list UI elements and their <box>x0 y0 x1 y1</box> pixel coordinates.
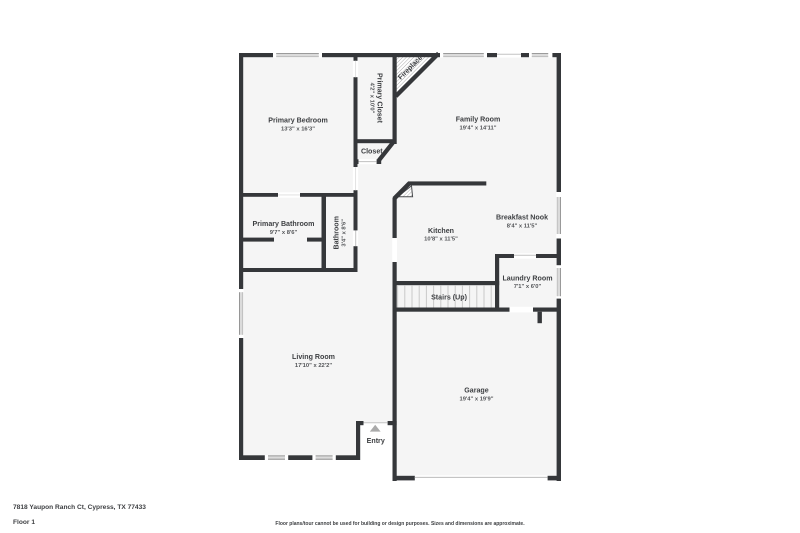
svg-text:Entry: Entry <box>367 437 385 445</box>
svg-text:Floor 1: Floor 1 <box>13 519 35 526</box>
svg-text:Breakfast Nook: Breakfast Nook <box>496 214 548 222</box>
svg-text:Living Room: Living Room <box>292 353 335 361</box>
svg-text:Primary Closet: Primary Closet <box>376 73 384 124</box>
svg-text:8'4" x 11'5": 8'4" x 11'5" <box>507 224 538 230</box>
svg-text:Floor plans/tour cannot be use: Floor plans/tour cannot be used for buil… <box>275 521 525 527</box>
svg-text:Closet: Closet <box>361 147 383 155</box>
svg-text:Stairs (Up): Stairs (Up) <box>431 294 468 302</box>
svg-text:3'4" x 8'6": 3'4" x 8'6" <box>342 219 348 247</box>
svg-text:19'4" x 19'9": 19'4" x 19'9" <box>459 397 493 403</box>
svg-text:Kitchen: Kitchen <box>428 227 454 235</box>
svg-text:Primary Bedroom: Primary Bedroom <box>268 117 328 125</box>
svg-text:7818 Yaupon Ranch Ct, Cypress,: 7818 Yaupon Ranch Ct, Cypress, TX 77433 <box>13 504 146 511</box>
svg-text:4'2" x 10'0": 4'2" x 10'0" <box>369 83 375 114</box>
svg-text:Bathroom: Bathroom <box>333 216 341 250</box>
svg-text:10'8" x 11'5": 10'8" x 11'5" <box>424 237 458 243</box>
svg-text:7'1" x 6'0": 7'1" x 6'0" <box>514 284 542 290</box>
svg-text:19'4" x 14'11": 19'4" x 14'11" <box>460 126 497 132</box>
svg-text:13'3" x 16'3": 13'3" x 16'3" <box>281 127 315 133</box>
svg-text:Primary Bathroom: Primary Bathroom <box>253 220 315 228</box>
svg-text:Laundry Room: Laundry Room <box>502 275 552 283</box>
svg-text:Family Room: Family Room <box>456 116 501 124</box>
svg-text:Garage: Garage <box>464 387 489 395</box>
svg-text:17'10" x 22'2": 17'10" x 22'2" <box>295 363 333 369</box>
svg-text:9'7" x 8'6": 9'7" x 8'6" <box>270 230 298 236</box>
